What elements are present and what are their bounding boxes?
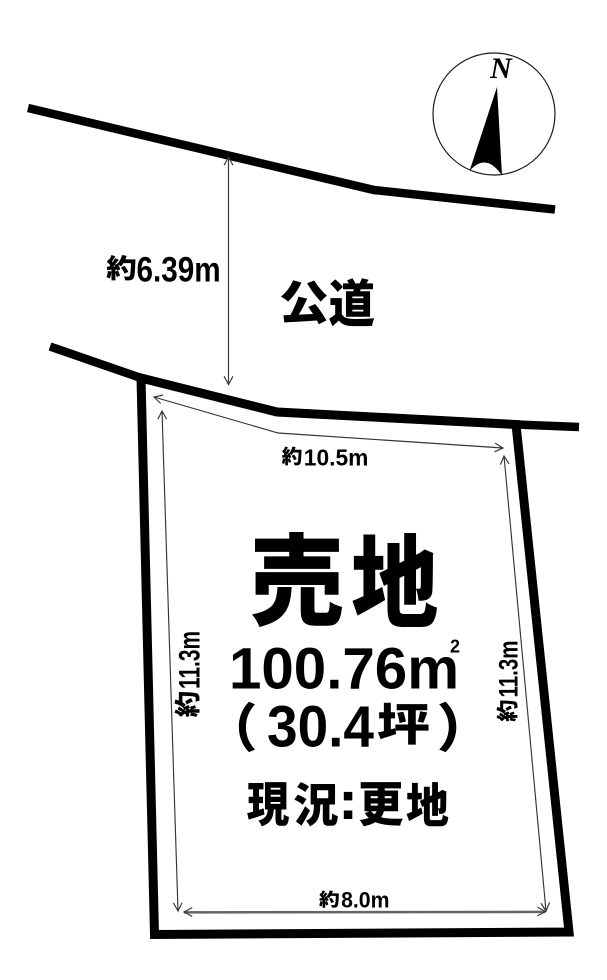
svg-text:11.3m: 11.3m <box>494 641 524 698</box>
svg-text:2: 2 <box>450 637 460 657</box>
svg-text:11.3m: 11.3m <box>174 631 207 689</box>
svg-text:8.0m: 8.0m <box>341 888 389 913</box>
svg-text:100.76m: 100.76m <box>229 637 459 702</box>
svg-text:10.5m: 10.5m <box>304 445 369 471</box>
svg-text:30.4: 30.4 <box>267 695 374 760</box>
svg-text:N: N <box>489 52 513 85</box>
svg-text:6.39m: 6.39m <box>137 251 221 290</box>
